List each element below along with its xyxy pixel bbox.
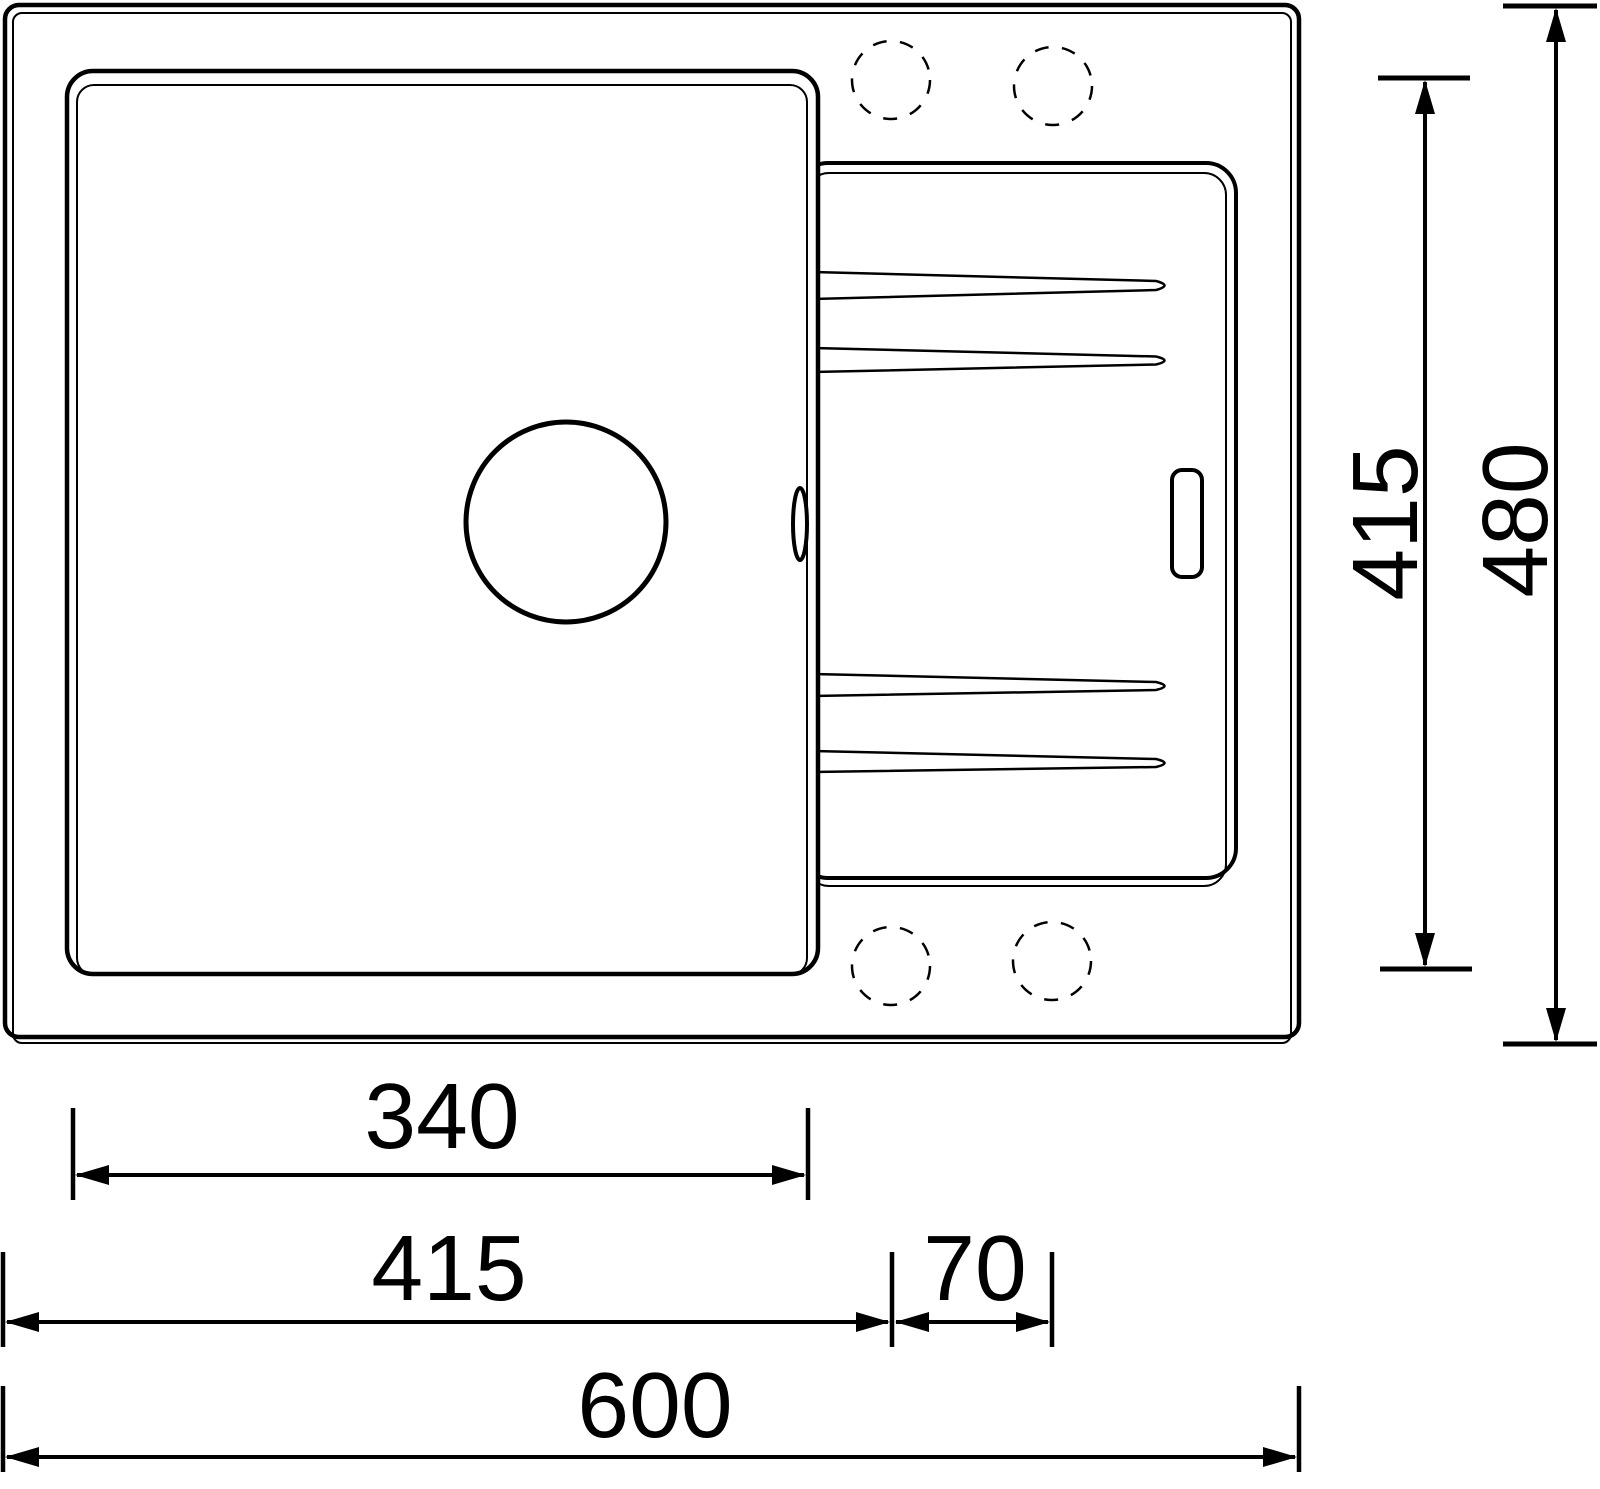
arrowhead-up — [1415, 80, 1435, 114]
dim-label-overall-width: 600 — [577, 1353, 732, 1457]
arrowhead-right — [1263, 1447, 1297, 1467]
arrowhead-down — [1546, 1008, 1566, 1042]
arrowhead-down — [1415, 933, 1435, 967]
drawing-canvas: 415 480 340 415 70 6 — [0, 0, 1600, 1489]
dimension-horizontal-340: 340 — [73, 1064, 808, 1200]
arrowhead-left — [5, 1447, 39, 1467]
drainboard-slot — [1172, 470, 1202, 577]
sink-technical-drawing: 415 480 340 415 70 6 — [0, 0, 1600, 1489]
arrowhead-right — [856, 1312, 890, 1332]
overflow-mark — [793, 488, 807, 560]
arrowhead-left — [5, 1312, 39, 1332]
basin-outer-edge — [67, 71, 818, 974]
arrowhead-left — [75, 1165, 109, 1185]
dim-label-basin-width: 340 — [364, 1064, 519, 1168]
dim-label-basin-depth: 415 — [1333, 445, 1437, 600]
drain-hole — [466, 422, 666, 622]
dimension-horizontal-415-70: 415 70 — [3, 1216, 1052, 1347]
arrowhead-right — [772, 1165, 806, 1185]
dimension-vertical-480: 480 — [1463, 6, 1597, 1044]
dim-label-overall-depth: 480 — [1463, 442, 1567, 597]
dim-label-drainboard-margin: 70 — [923, 1216, 1026, 1320]
arrowhead-up — [1546, 8, 1566, 42]
dim-label-left-to-drainboard: 415 — [371, 1216, 526, 1320]
dimension-vertical-415: 415 — [1333, 78, 1472, 969]
dimension-horizontal-600: 600 — [3, 1353, 1299, 1472]
drainboard — [798, 163, 1236, 886]
basin — [67, 71, 818, 975]
